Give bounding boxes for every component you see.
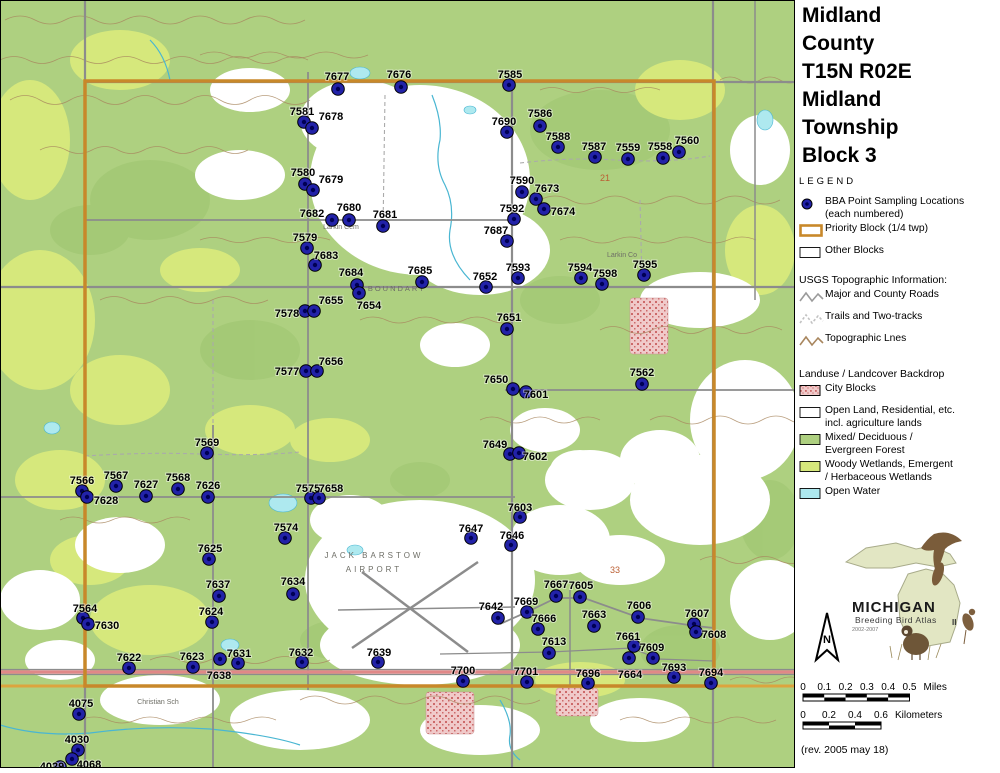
bba-point-label-7677: 7677 (325, 71, 349, 83)
title-line-0: Midland (802, 2, 912, 30)
bba-point-label-7656: 7656 (319, 356, 343, 368)
zigzag-gray-icon (799, 289, 825, 309)
landuse-item-0: City Blocks (799, 383, 997, 403)
legend-panel: LEGEND BBA Point Sampling Locations(each… (799, 176, 997, 508)
bba-point-label-7585: 7585 (498, 69, 522, 81)
legend-usgs-items: Major and County Roads Trails and Two-tr… (799, 289, 997, 353)
bba-point-label-7609: 7609 (640, 642, 664, 654)
bba-point-label-7663: 7663 (582, 609, 606, 621)
bba-point-label-7560: 7560 (675, 135, 699, 147)
bba-point-label-7606: 7606 (627, 600, 651, 612)
swatch-white-icon (799, 405, 825, 425)
bba-point-label-7630: 7630 (95, 620, 119, 632)
bba-point-label-7664: 7664 (618, 669, 643, 681)
bba-point-label-7625: 7625 (198, 543, 222, 555)
miles-tick-2: 0.2 (839, 682, 853, 693)
swatch-yellowgreen-icon (799, 459, 825, 479)
bba-point-label-7579: 7579 (293, 232, 317, 244)
bba-point-label-7684: 7684 (339, 267, 364, 279)
title-line-5: Block 3 (802, 142, 912, 170)
usgs-item-0: Major and County Roads (799, 289, 997, 309)
landuse-item-2: Mixed/ Deciduous /Evergreen Forest (799, 432, 997, 457)
topo-map: Larkin CemBOUNDARYJACK BARSTOWAIRPORTChr… (0, 0, 795, 768)
bba-point-label-7666: 7666 (532, 613, 556, 625)
legend-item-2-label: Other Blocks (825, 245, 884, 258)
bba-point-label-7637: 7637 (206, 579, 230, 591)
legend-heading: LEGEND (799, 176, 997, 187)
bba-point-label-7661: 7661 (616, 631, 640, 643)
bba-point-label-7626: 7626 (196, 480, 220, 492)
logo-title: MICHIGAN (852, 599, 936, 616)
bba-point-label-7627: 7627 (134, 479, 158, 491)
bba-point-label-7622: 7622 (117, 652, 141, 664)
bba-point-label-7587: 7587 (582, 141, 606, 153)
bba-point-label-7647: 7647 (459, 523, 483, 535)
bba-point-label-7577: 7577 (275, 366, 299, 378)
landuse-item-1-label: Open Land, Residential, etc.incl. agricu… (825, 405, 955, 430)
bba-point-label-7694: 7694 (699, 667, 724, 679)
legend-landuse-items: City Blocks Open Land, Residential, etc.… (799, 383, 997, 506)
bba-point-label-7654: 7654 (357, 300, 382, 312)
kilometers-tick-3: 0.6 (874, 710, 888, 721)
bba-point-label-7593: 7593 (506, 262, 530, 274)
place-label-3: AIRPORT (346, 565, 402, 574)
landuse-heading: Landuse / Landcover Backdrop (799, 368, 997, 380)
bba-point-label-7683: 7683 (314, 250, 338, 262)
songbird-icon (960, 609, 976, 644)
bba-point-label-7607: 7607 (685, 608, 709, 620)
bba-point-label-7581: 7581 (290, 106, 314, 118)
landuse-item-4-label: Open Water (825, 486, 880, 499)
bba-point-label-7605: 7605 (569, 580, 593, 592)
bba-point-label-7690: 7690 (492, 116, 516, 128)
bba-point-label-7638: 7638 (207, 670, 231, 682)
bba-point-label-7574: 7574 (274, 522, 299, 534)
bba-point-label-7580: 7580 (291, 167, 315, 179)
usgs-item-1: Trails and Two-tracks (799, 311, 997, 331)
section-number-0: 21 (600, 173, 610, 183)
bba-point-label-7655: 7655 (319, 295, 343, 307)
kilometers-tick-0: 0 (800, 710, 806, 721)
bba-point-label-7628: 7628 (94, 495, 118, 507)
bba-point-label-7564: 7564 (73, 603, 98, 615)
bba-point-label-7613: 7613 (542, 636, 566, 648)
place-label-2: JACK BARSTOW (325, 551, 424, 560)
bba-point-label-7667: 7667 (544, 579, 568, 591)
landuse-item-3-label: Woody Wetlands, Emergent/ Herbaceous Wet… (825, 459, 953, 484)
bba-point-label-7595: 7595 (633, 259, 657, 271)
north-label: N (823, 634, 831, 646)
bba-point-label-7594: 7594 (568, 262, 593, 274)
bba-point-label-7658: 7658 (319, 483, 343, 495)
bba-point-label-7687: 7687 (484, 225, 508, 237)
logo-numeral: II (952, 618, 956, 627)
bba-point-label-7679: 7679 (319, 174, 343, 186)
bba-point-label-7567: 7567 (104, 470, 128, 482)
bba-point-label-7639: 7639 (367, 647, 391, 659)
landuse-item-3: Woody Wetlands, Emergent/ Herbaceous Wet… (799, 459, 997, 484)
landuse-item-4: Open Water (799, 486, 997, 506)
bba-point-label-7588: 7588 (546, 131, 570, 143)
bba-point-label-7566: 7566 (70, 475, 94, 487)
bba-point-label-7652: 7652 (473, 271, 497, 283)
bba-point-label-7669: 7669 (514, 596, 538, 608)
bba-point-label-7602: 7602 (523, 451, 547, 463)
bba-point-label-7642: 7642 (479, 601, 503, 613)
legend-item-0: BBA Point Sampling Locations(each number… (799, 196, 997, 221)
bba-point-label-7649: 7649 (483, 439, 507, 451)
legend-main-items: BBA Point Sampling Locations(each number… (799, 196, 997, 265)
bba-point-7630: 7630 (82, 618, 120, 632)
kilometers-unit: Kilometers (895, 710, 942, 721)
legend-item-1: Priority Block (1/4 twp) (799, 223, 997, 243)
landuse-item-0-label: City Blocks (825, 383, 876, 396)
usgs-item-2: Topographic Lnes (799, 333, 997, 353)
bba-point-label-7651: 7651 (497, 312, 521, 324)
miles-tick-4: 0.4 (881, 682, 895, 693)
bba-point-label-7700: 7700 (451, 665, 475, 677)
miles-tick-0: 0 (800, 682, 806, 693)
miles-unit: Miles (924, 682, 947, 693)
bba-point-label-7681: 7681 (373, 209, 397, 221)
usgs-item-2-label: Topographic Lnes (825, 333, 906, 346)
bba-point-label-7696: 7696 (576, 668, 600, 680)
landuse-item-1: Open Land, Residential, etc.incl. agricu… (799, 405, 997, 430)
place-label-4: Christian Sch (137, 699, 179, 706)
bba-point-label-7568: 7568 (166, 472, 190, 484)
bba-point-label-7608: 7608 (702, 629, 726, 641)
bba-point-label-7682: 7682 (300, 208, 324, 220)
bba-point-label-7650: 7650 (484, 374, 508, 386)
revision-note: (rev. 2005 may 18) (801, 744, 888, 756)
swatch-green-icon (799, 432, 825, 452)
logo-years: 2002-2007 (852, 627, 878, 633)
map-canvas: Larkin CemBOUNDARYJACK BARSTOWAIRPORTChr… (0, 0, 795, 768)
miles-tick-3: 0.3 (860, 682, 874, 693)
bba-point-label-4029: 4029 (40, 761, 64, 768)
bba-point-label-7678: 7678 (319, 111, 343, 123)
bba-point-label-7592: 7592 (500, 203, 524, 215)
logo-subtitle: Breeding Bird Atlas (855, 615, 937, 625)
bba-point-label-7674: 7674 (551, 206, 576, 218)
bba-point-label-7586: 7586 (528, 108, 552, 120)
swatch-pink-icon (799, 383, 825, 403)
bba-point-label-7680: 7680 (337, 202, 361, 214)
bba-point-label-7673: 7673 (535, 183, 559, 195)
map-title: MidlandCountyT15N R02EMidlandTownshipBlo… (802, 2, 912, 170)
rect-orange-icon (799, 223, 825, 243)
kilometers-tick-2: 0.4 (848, 710, 862, 721)
mbba-logo: MICHIGAN Breeding Bird Atlas II 2002-200… (838, 532, 996, 669)
swatch-cyan-icon (799, 486, 825, 506)
zigzag-brown-icon (799, 333, 825, 353)
title-line-2: T15N R02E (802, 58, 912, 86)
bba-point-label-7603: 7603 (508, 502, 532, 514)
legend-item-0-label: BBA Point Sampling Locations(each number… (825, 196, 964, 221)
scale-bars: 00.10.20.30.40.5Miles00.20.40.6Kilometer… (795, 678, 1000, 745)
usgs-item-1-label: Trails and Two-tracks (825, 311, 922, 324)
zigzag-light-icon (799, 311, 825, 331)
usgs-item-0-label: Major and County Roads (825, 289, 939, 302)
place-label-5: Larkin Co (607, 252, 637, 259)
side-panel: MidlandCountyT15N R02EMidlandTownshipBlo… (795, 0, 1000, 768)
landuse-item-2-label: Mixed/ Deciduous /Evergreen Forest (825, 432, 913, 457)
legend-item-1-label: Priority Block (1/4 twp) (825, 223, 928, 236)
rect-plain-icon (799, 245, 825, 265)
bba-point-label-7590: 7590 (510, 175, 534, 187)
bba-point-label-4068: 4068 (77, 759, 101, 768)
bba-point-label-7558: 7558 (648, 141, 672, 153)
bba-point-label-7578: 7578 (275, 308, 299, 320)
bba-point-label-7601: 7601 (524, 389, 548, 401)
section-number-1: 33 (610, 565, 620, 575)
north-arrow: N (810, 610, 844, 673)
bba-point-label-7598: 7598 (593, 268, 617, 280)
title-line-3: Midland (802, 86, 912, 114)
bba-point-label-7569: 7569 (195, 437, 219, 449)
bba-point-label-4030: 4030 (65, 734, 89, 746)
bba-point-label-7624: 7624 (199, 606, 224, 618)
bba-point-label-7559: 7559 (616, 142, 640, 154)
bba-point-label-7623: 7623 (180, 651, 204, 663)
bba-point-label-7685: 7685 (408, 265, 432, 277)
kilometers-tick-1: 0.2 (822, 710, 836, 721)
dot-icon (799, 196, 825, 216)
bba-point-label-7693: 7693 (662, 662, 686, 674)
title-line-1: County (802, 30, 912, 58)
bba-point-4029: 4029 (40, 761, 67, 768)
bba-point-7577: 7577 (275, 365, 313, 378)
miles-tick-5: 0.5 (903, 682, 917, 693)
bba-point-label-4075: 4075 (69, 698, 93, 710)
usgs-heading: USGS Topographic Information: (799, 274, 997, 286)
title-line-4: Township (802, 114, 912, 142)
map-sheet: Larkin CemBOUNDARYJACK BARSTOWAIRPORTChr… (0, 0, 1000, 768)
bba-point-label-7632: 7632 (289, 647, 313, 659)
bba-point-label-7676: 7676 (387, 69, 411, 81)
legend-item-2: Other Blocks (799, 245, 997, 265)
bba-point-label-7634: 7634 (281, 576, 306, 588)
miles-tick-1: 0.1 (817, 682, 831, 693)
bba-point-label-7562: 7562 (630, 367, 654, 379)
bba-point-label-7631: 7631 (227, 648, 251, 660)
bba-point-label-7646: 7646 (500, 530, 524, 542)
bba-point-label-7701: 7701 (514, 666, 538, 678)
